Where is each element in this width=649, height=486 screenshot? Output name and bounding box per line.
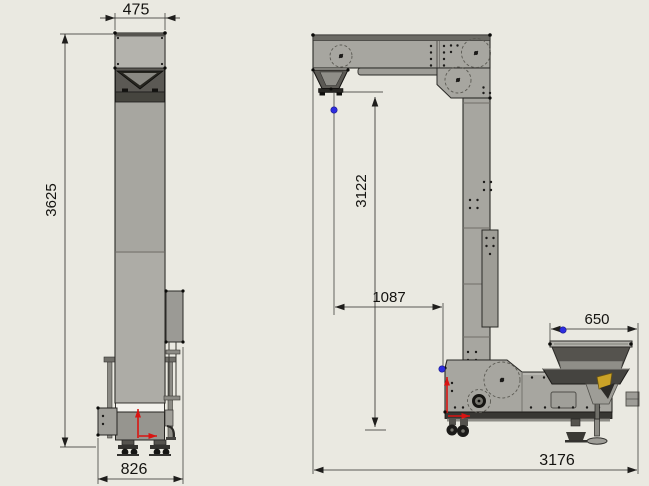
dim-label-3122[interactable]: 3122 bbox=[353, 174, 370, 207]
handle-dot-corner[interactable] bbox=[439, 366, 445, 372]
elevator-drawing: 475 3625 826 bbox=[0, 0, 649, 486]
side-feet bbox=[447, 419, 608, 444]
side-arm-under-rail bbox=[358, 68, 440, 75]
dim-label-3625[interactable]: 3625 bbox=[43, 183, 60, 216]
dim-overall-height[interactable]: 3625 bbox=[43, 34, 113, 447]
side-view bbox=[311, 33, 639, 444]
dim-label-475[interactable]: 475 bbox=[123, 2, 150, 19]
dimension-grab-handles[interactable] bbox=[331, 107, 566, 372]
side-column-back-plate bbox=[482, 230, 498, 327]
dim-horizontal-offset[interactable]: 1087 bbox=[334, 93, 443, 371]
front-infeed-hopper-box bbox=[164, 289, 185, 400]
side-access-panel bbox=[551, 392, 576, 408]
front-dark-band bbox=[116, 92, 165, 102]
front-discharge-funnel bbox=[116, 68, 165, 93]
drawing-canvas: 475 3625 826 bbox=[0, 0, 649, 486]
dim-label-826[interactable]: 826 bbox=[121, 461, 148, 478]
side-vertical-column bbox=[463, 98, 498, 361]
front-leveling-feet bbox=[117, 440, 171, 456]
dim-top-width[interactable]: 475 bbox=[100, 2, 180, 31]
front-head-flange bbox=[115, 33, 165, 37]
dim-vertical-drop[interactable]: 3122 bbox=[338, 92, 386, 430]
front-lower-column bbox=[116, 253, 165, 403]
dim-label-650[interactable]: 650 bbox=[584, 311, 609, 328]
front-view bbox=[96, 31, 184, 456]
infeed-tray bbox=[543, 369, 629, 384]
dim-label-3176[interactable]: 3176 bbox=[539, 452, 575, 469]
dim-label-1087[interactable]: 1087 bbox=[372, 289, 405, 306]
front-base-assembly bbox=[98, 403, 176, 440]
handle-dot-discharge[interactable] bbox=[331, 107, 337, 113]
handle-dot-hopper[interactable] bbox=[560, 327, 566, 333]
front-head-box bbox=[116, 34, 165, 68]
